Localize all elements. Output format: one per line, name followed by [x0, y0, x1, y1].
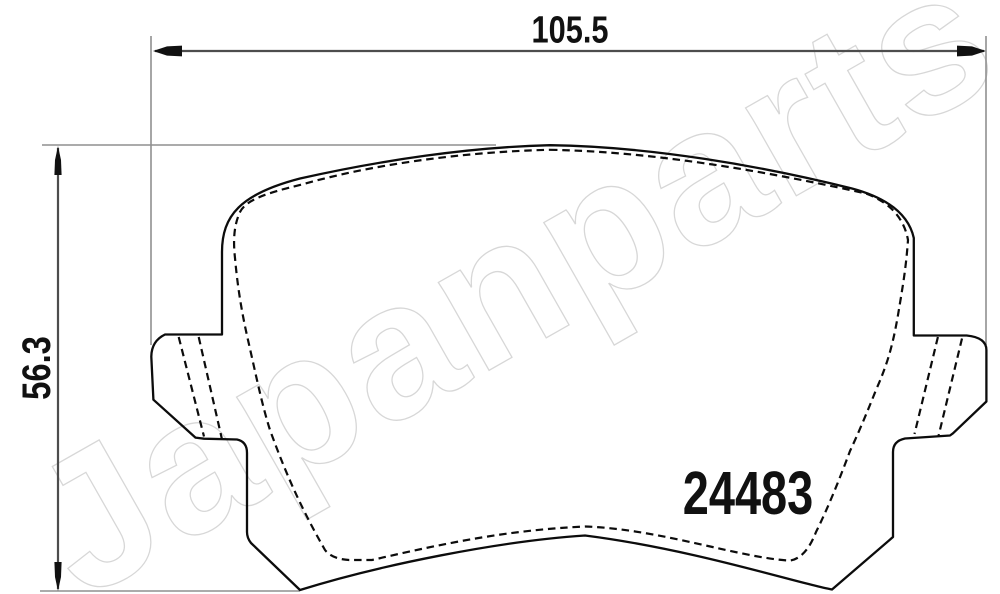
svg-text:105.5: 105.5: [532, 10, 609, 52]
svg-text:56.3: 56.3: [14, 336, 59, 400]
svg-text:24483: 24483: [683, 459, 814, 527]
